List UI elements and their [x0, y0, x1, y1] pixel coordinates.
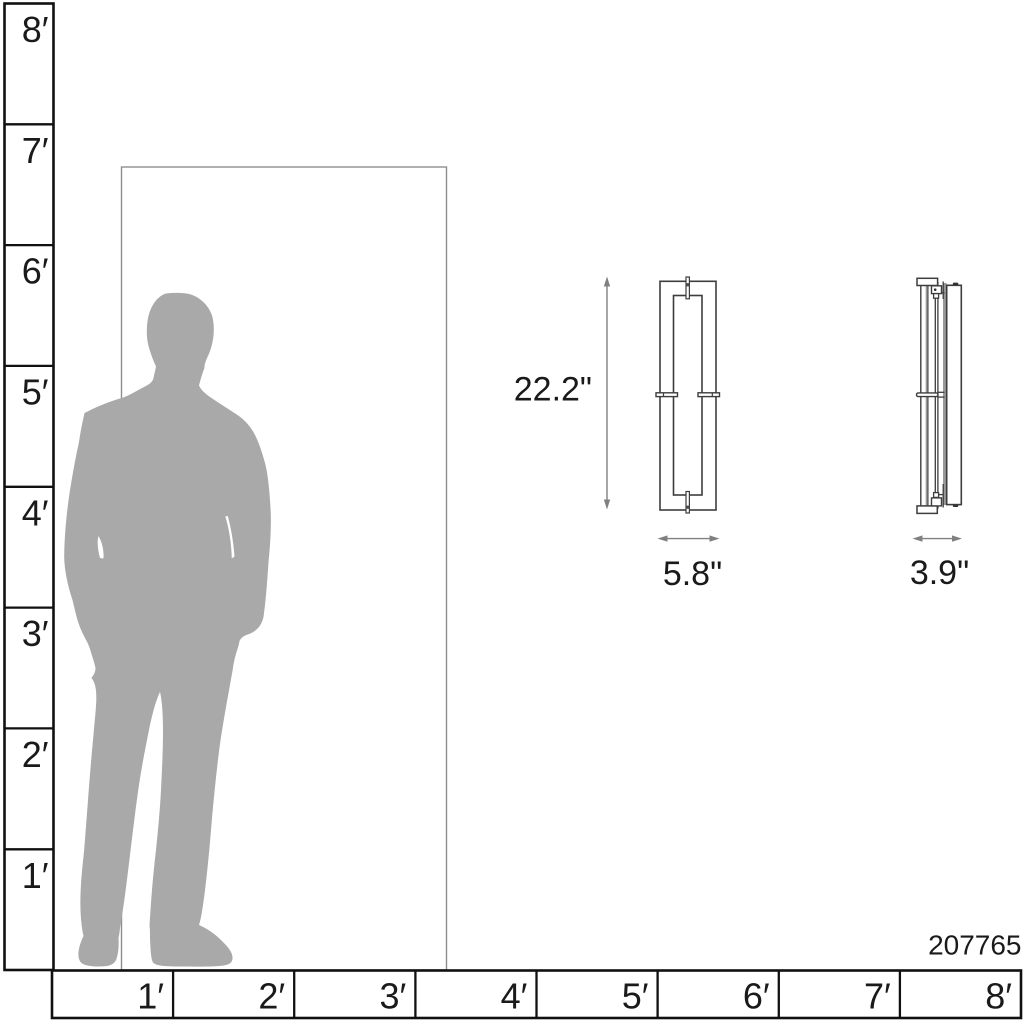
- svg-text:2′: 2′: [258, 976, 285, 1017]
- svg-text:1′: 1′: [22, 855, 49, 896]
- svg-text:7′: 7′: [22, 130, 49, 171]
- svg-text:3′: 3′: [22, 613, 49, 654]
- svg-text:2′: 2′: [22, 734, 49, 775]
- svg-text:4′: 4′: [22, 492, 49, 533]
- svg-text:6′: 6′: [22, 251, 49, 292]
- svg-text:5′: 5′: [22, 371, 49, 412]
- svg-text:22.2": 22.2": [514, 371, 592, 409]
- svg-text:8′: 8′: [985, 976, 1012, 1017]
- svg-text:3.9": 3.9": [910, 554, 969, 592]
- svg-text:5′: 5′: [622, 976, 649, 1017]
- svg-text:5.8": 5.8": [663, 555, 722, 593]
- svg-text:6′: 6′: [743, 976, 770, 1017]
- svg-text:8′: 8′: [22, 9, 49, 50]
- svg-text:7′: 7′: [864, 976, 891, 1017]
- svg-text:4′: 4′: [501, 976, 528, 1017]
- svg-text:1′: 1′: [137, 976, 164, 1017]
- svg-text:3′: 3′: [380, 976, 407, 1017]
- svg-text:207765: 207765: [928, 930, 1021, 961]
